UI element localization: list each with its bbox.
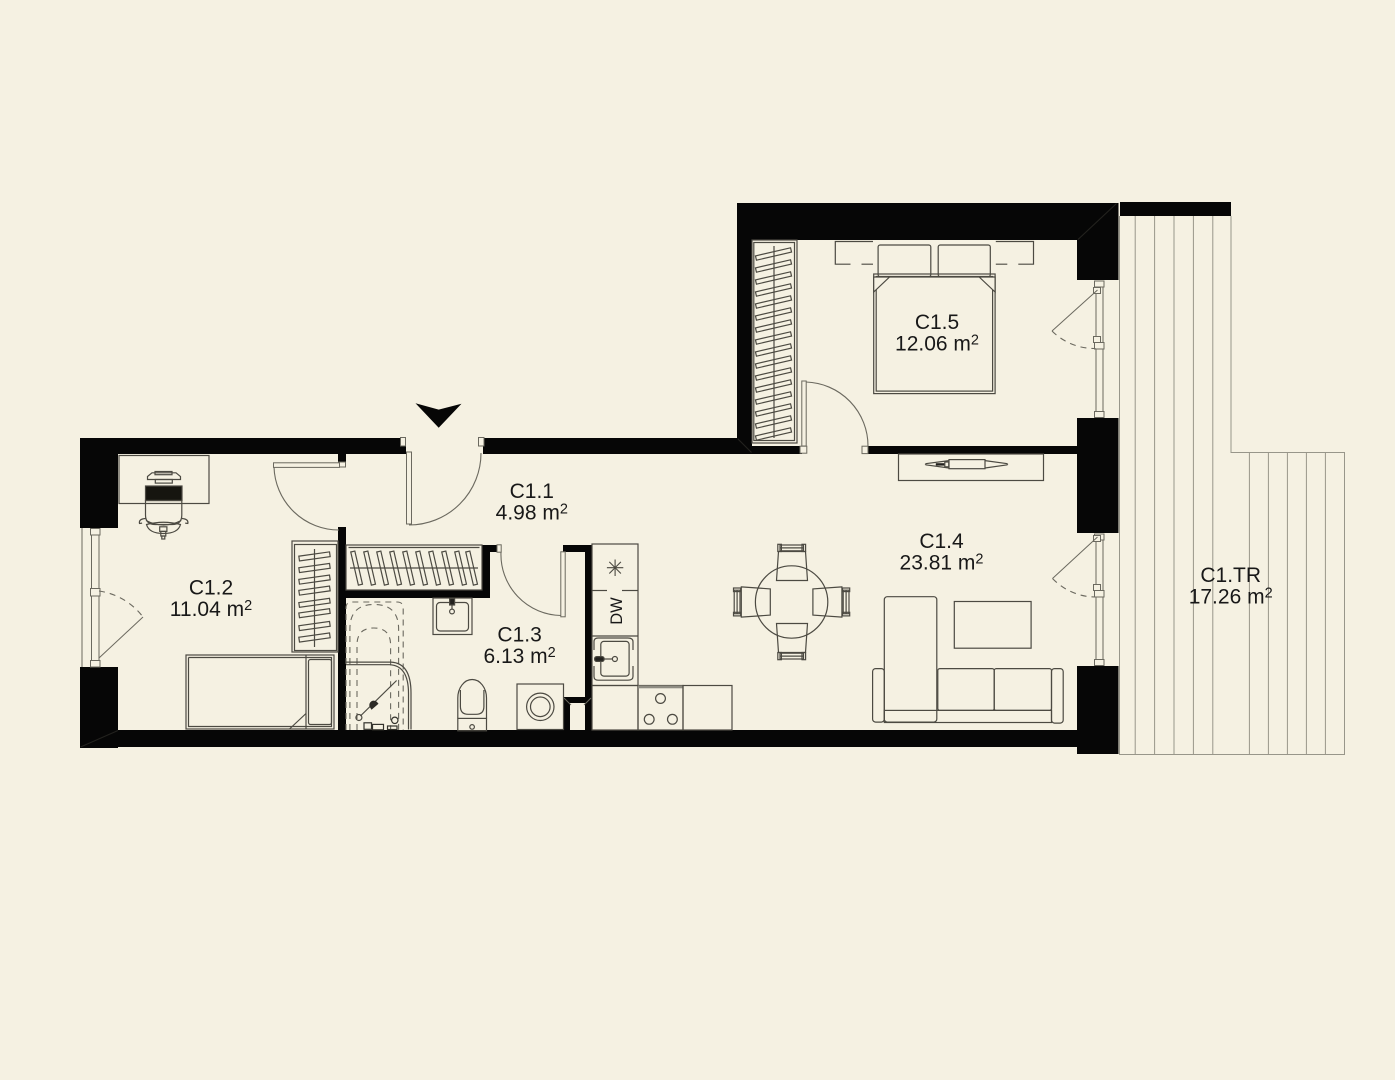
svg-text:4.98 m2: 4.98 m2	[496, 501, 568, 524]
svg-text:C1.2: C1.2	[189, 576, 233, 599]
svg-text:C1.TR: C1.TR	[1200, 564, 1261, 587]
svg-text:17.26 m2: 17.26 m2	[1189, 586, 1273, 609]
svg-text:DW: DW	[608, 597, 626, 625]
svg-text:11.04 m2: 11.04 m2	[170, 598, 252, 621]
svg-text:C1.4: C1.4	[919, 530, 964, 553]
svg-text:C1.5: C1.5	[915, 311, 959, 334]
svg-text:C1.3: C1.3	[497, 624, 541, 647]
svg-text:23.81 m2: 23.81 m2	[900, 552, 984, 575]
svg-text:C1.1: C1.1	[510, 480, 554, 503]
svg-text:6.13 m2: 6.13 m2	[483, 645, 555, 668]
svg-text:12.06 m2: 12.06 m2	[895, 333, 979, 356]
